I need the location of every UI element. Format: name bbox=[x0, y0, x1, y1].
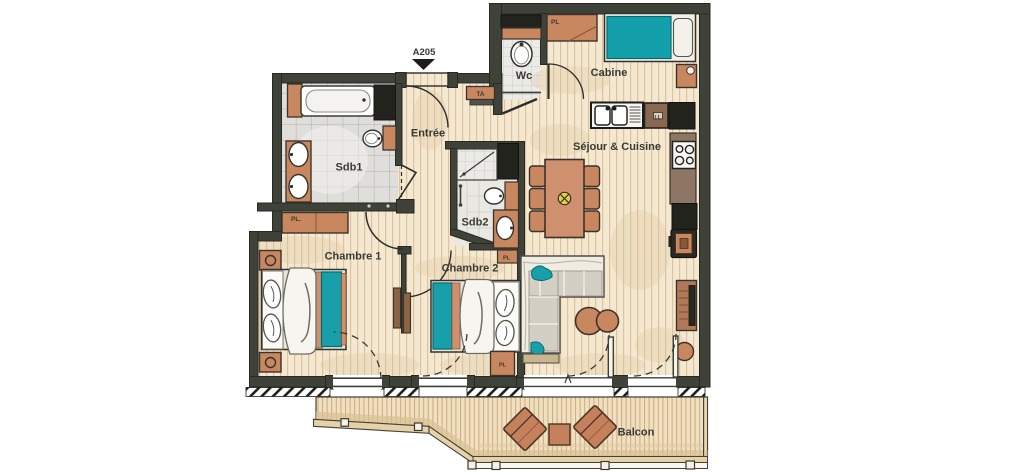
svg-text:A205: A205 bbox=[413, 47, 436, 58]
svg-text:TA: TA bbox=[476, 91, 484, 98]
svg-text:Sdb2: Sdb2 bbox=[462, 217, 489, 229]
svg-text:LL: LL bbox=[655, 115, 662, 121]
svg-text:Séjour & Cuisine: Séjour & Cuisine bbox=[573, 141, 661, 153]
svg-text:PL.: PL. bbox=[291, 216, 301, 223]
svg-text:Chambre 2: Chambre 2 bbox=[442, 263, 499, 275]
svg-text:Sdb1: Sdb1 bbox=[336, 162, 363, 174]
svg-text:Entrée: Entrée bbox=[411, 128, 445, 140]
svg-text:PL: PL bbox=[551, 19, 559, 26]
svg-text:PL: PL bbox=[499, 363, 507, 369]
svg-text:Cabine: Cabine bbox=[591, 67, 628, 79]
svg-text:Chambre 1: Chambre 1 bbox=[325, 251, 382, 263]
svg-text:PL: PL bbox=[503, 256, 511, 262]
svg-text:Balcon: Balcon bbox=[618, 427, 655, 439]
svg-text:Wc: Wc bbox=[516, 70, 533, 82]
